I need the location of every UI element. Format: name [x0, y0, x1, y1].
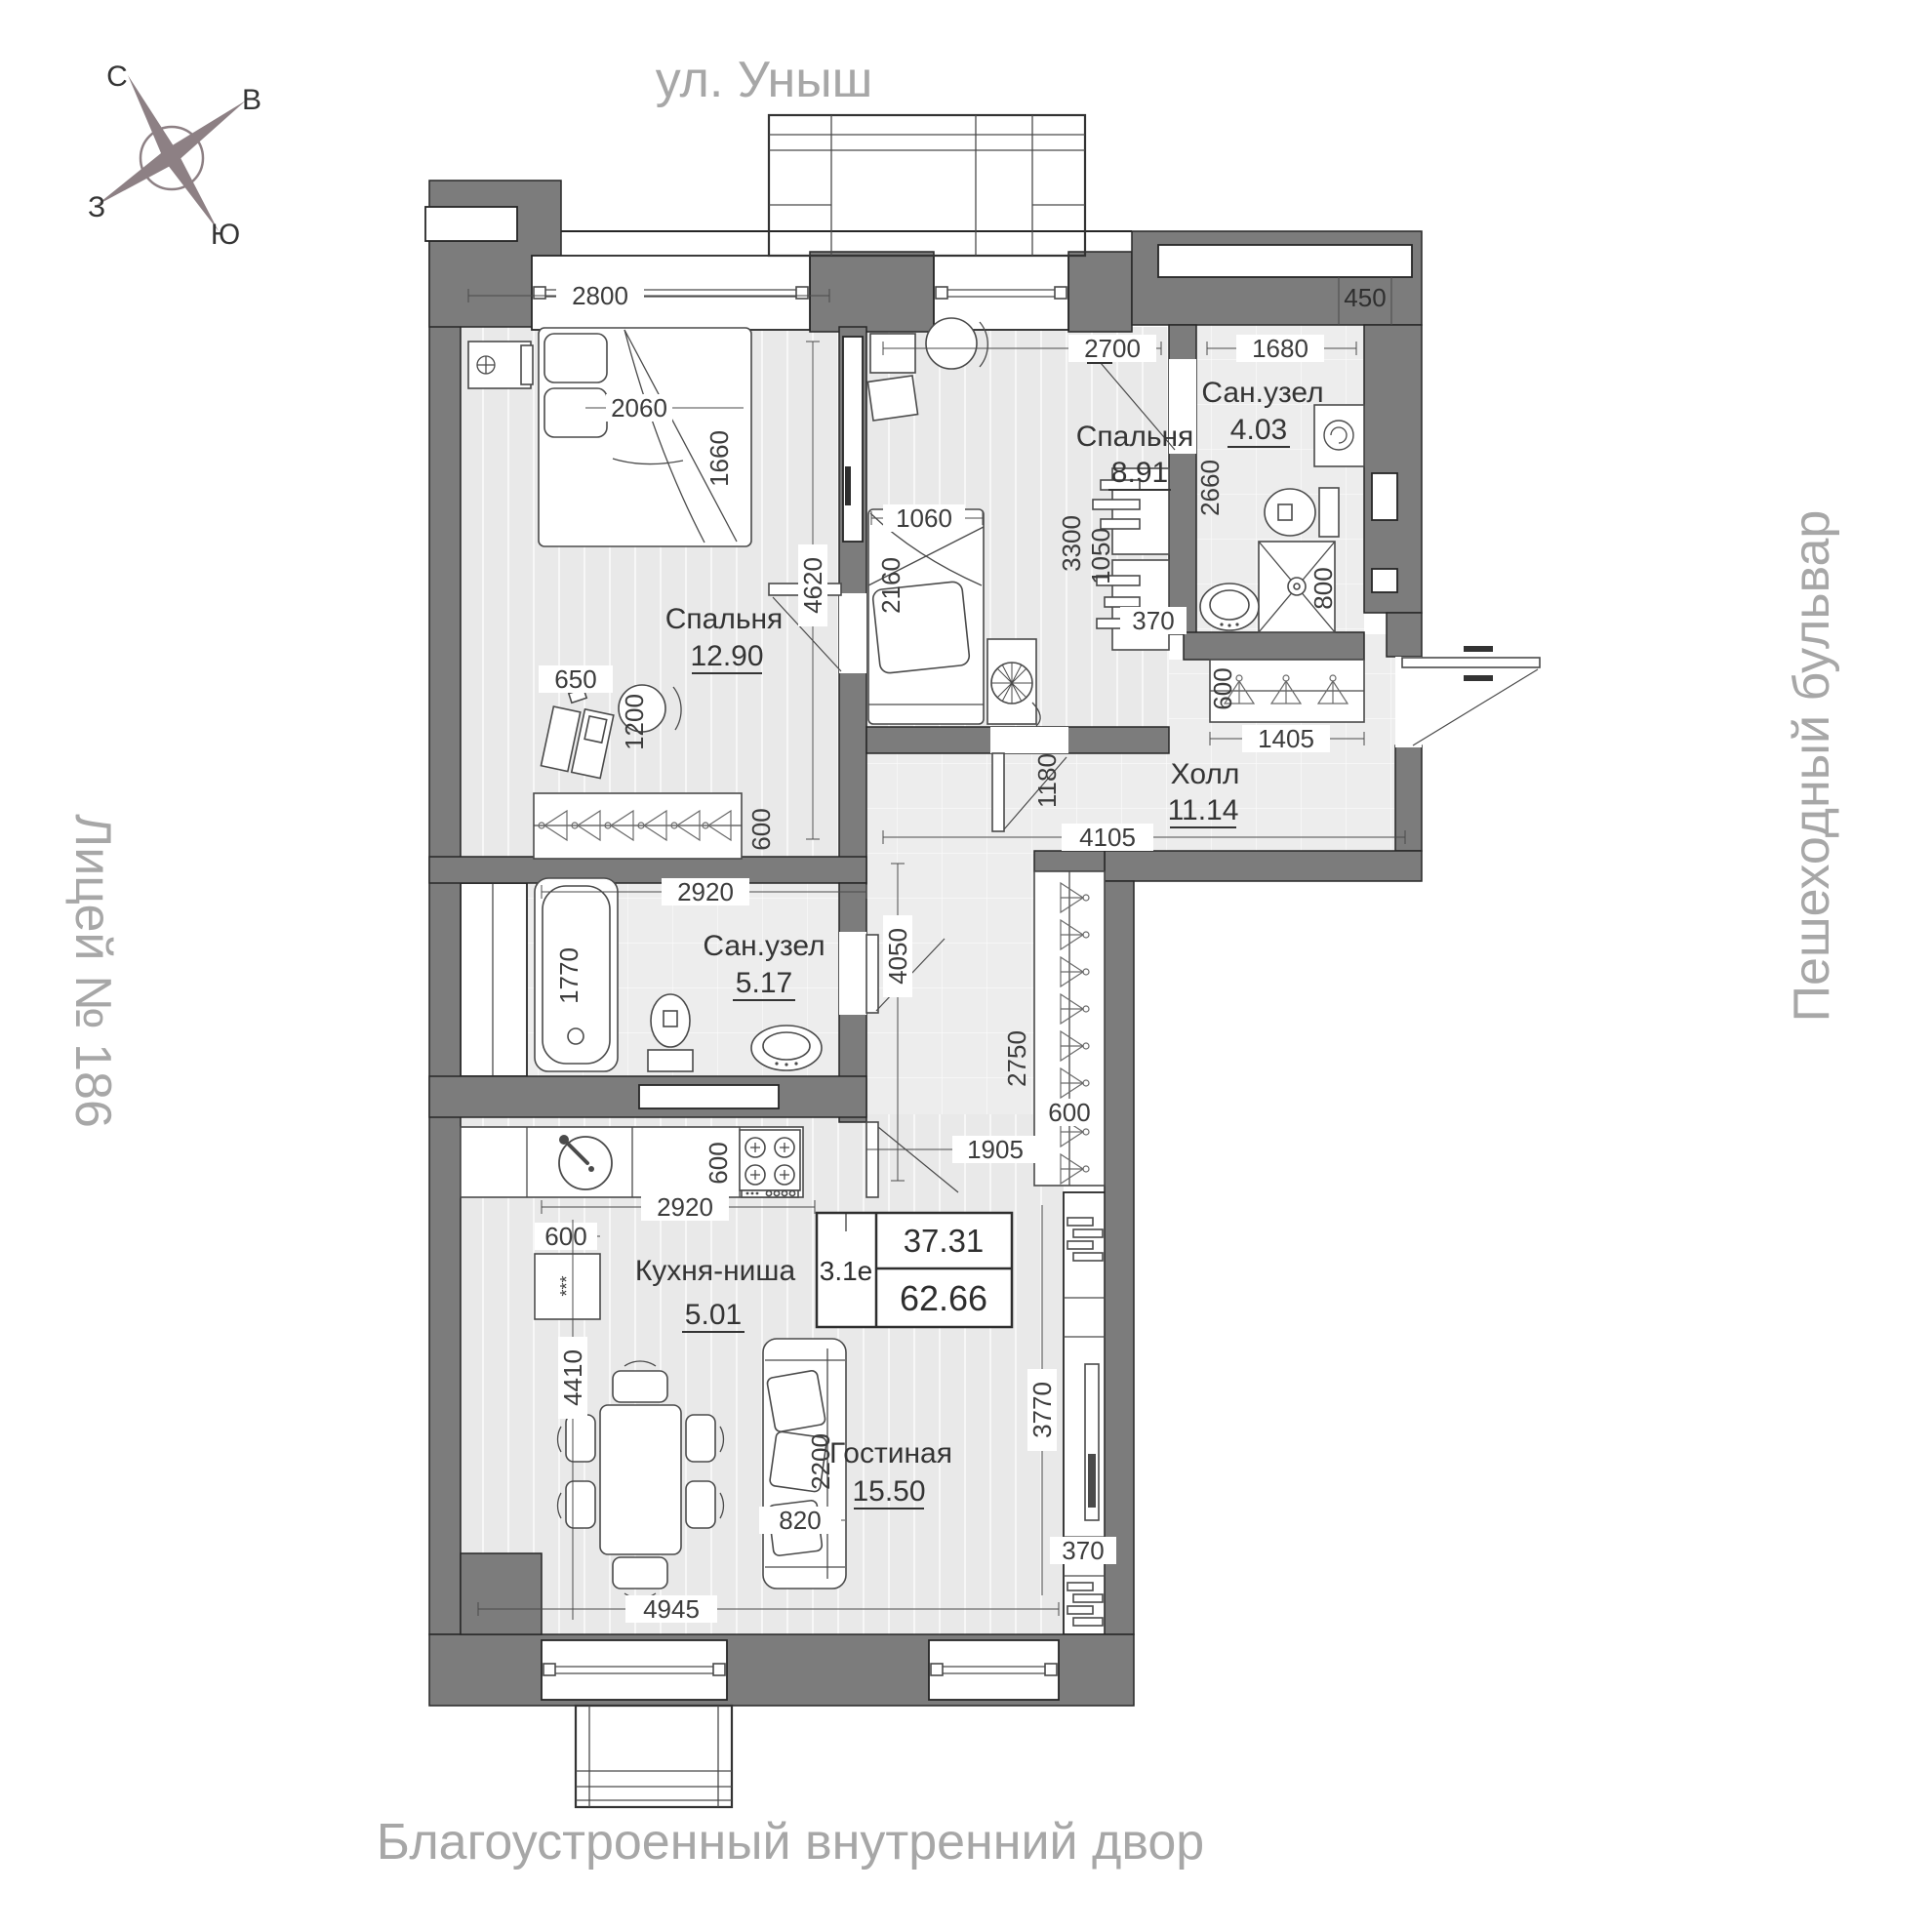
dim-corridor-closet-length: 2750 [1002, 1030, 1031, 1087]
dim-living-width: 4945 [643, 1594, 700, 1624]
wall-niche-2 [1372, 569, 1397, 592]
dim-bath1-width: 2920 [677, 877, 734, 906]
unit-info-card: 3.1е 37.31 62.66 [817, 1213, 1012, 1327]
dim-hall-length: 4105 [1079, 823, 1136, 852]
room-name-kitchen: Кухня-ниша [635, 1255, 796, 1287]
dim-hall-closet-depth: 600 [1208, 667, 1237, 709]
room-name-bathroom2: Сан.узел [1201, 377, 1323, 409]
unit-id: 3.1е [820, 1256, 873, 1286]
dim-chair1-zone: 1200 [620, 694, 649, 750]
washing-machine [1314, 405, 1364, 466]
pocket-door-panel [845, 466, 851, 505]
bedroom2-door-opening [990, 727, 1068, 753]
dim-bed2-width: 1060 [896, 503, 952, 533]
chair [686, 1415, 715, 1462]
wall-bedroom1-bottom [429, 857, 866, 883]
dim-hall-passage: 1180 [1032, 753, 1062, 808]
fridge-stars: *** [557, 1275, 577, 1296]
dim-sofa-depth: 820 [779, 1506, 821, 1535]
wall-right-mid [1387, 613, 1422, 657]
dim-tv-niche: 370 [1062, 1536, 1104, 1565]
room-name-hall: Холл [1171, 758, 1240, 790]
wall-niche-1 [1372, 473, 1397, 520]
dim-wardrobe1-depth: 600 [746, 808, 776, 850]
entrance-opening [1395, 657, 1422, 747]
wall-left [429, 222, 461, 1634]
duct-shaft [461, 883, 527, 1076]
dim-living-depth: 4410 [558, 1349, 587, 1406]
dim-bedroom2-depth: 3300 [1057, 515, 1086, 572]
wall-top-left-notch [425, 207, 517, 241]
chair [613, 1557, 667, 1589]
dim-desk1: 650 [554, 664, 596, 694]
dim-bedroom1-depth: 4620 [798, 557, 827, 614]
compass-west-label: З [88, 191, 105, 223]
chair [566, 1481, 595, 1528]
dim-counter-depth: 600 [704, 1142, 733, 1184]
dim-duct: 450 [1344, 283, 1386, 312]
dim-dresser2-depth: 370 [1132, 606, 1174, 635]
dim-corridor-length: 4050 [883, 928, 912, 985]
dim-bath2-width: 1680 [1252, 334, 1308, 363]
toilet-tank-1 [648, 1050, 693, 1071]
toilet-tank-2 [1319, 488, 1339, 537]
room-area-kitchen: 5.01 [685, 1299, 742, 1331]
dim-kitchen-width: 2920 [657, 1192, 713, 1222]
wall-window-pier [810, 252, 934, 332]
vent-duct-slot [1158, 245, 1412, 277]
corridor-closet [1034, 871, 1105, 1186]
wall-bottom-left-pier [461, 1553, 542, 1634]
dim-living-right-depth: 3770 [1027, 1382, 1057, 1438]
room-area-living: 15.50 [852, 1475, 925, 1508]
room-name-bathroom1: Сан.узел [703, 930, 825, 962]
room-area-hall: 11.14 [1168, 794, 1239, 826]
window-living-1 [542, 1640, 727, 1700]
dim-sofa-length: 2200 [806, 1433, 835, 1490]
room-name-bedroom1: Спальня [665, 603, 784, 635]
dim-hall-width: 1405 [1258, 724, 1314, 753]
compass-north-label: С [106, 60, 128, 93]
entrance-door-leaf [1402, 658, 1540, 667]
wall-closet-top [1034, 851, 1105, 871]
room-area-bathroom2: 4.03 [1230, 414, 1287, 446]
dim-bed1-length: 1660 [704, 430, 734, 487]
dim-fridge: 600 [544, 1222, 586, 1251]
room-name-living: Гостиная [829, 1437, 952, 1469]
dim-bedroom2-width: 2700 [1084, 334, 1141, 363]
compass-rose: С В З Ю [88, 60, 262, 251]
wall-hall-bottom [1105, 851, 1422, 881]
dim-bed1-width: 2060 [611, 393, 667, 423]
bedroom2-door-leaf [992, 753, 1004, 831]
room-area-bedroom1: 12.90 [690, 640, 763, 672]
pocket-door-slot [843, 337, 863, 542]
unit-total-area: 62.66 [900, 1278, 987, 1318]
stove [740, 1130, 800, 1197]
wall-top-segment [1068, 252, 1132, 332]
bathroom1-door-opening [839, 932, 866, 1015]
wall-slot-bathroom1 [639, 1085, 779, 1108]
bathroom1-door-leaf [866, 935, 878, 1013]
floor-plan-drawing: С В З Ю [0, 0, 1932, 1932]
balcony-top [769, 115, 1085, 256]
dim-bed2-length: 2160 [876, 557, 906, 614]
room-area-bathroom1: 5.17 [736, 967, 792, 999]
dim-shower: 800 [1308, 567, 1338, 609]
window-living-2 [929, 1640, 1059, 1700]
floor-plan-page: ул. Уныш Пешеходный бульвар Лицей № 186 … [0, 0, 1932, 1932]
wall-right-lower [1105, 881, 1134, 1634]
wall-bathroom2-bottom [1184, 632, 1364, 660]
chair [566, 1415, 595, 1462]
dim-bathtub: 1770 [554, 947, 584, 1004]
dim-bath2-depth: 2660 [1195, 460, 1225, 516]
chair [686, 1481, 715, 1528]
dim-bedroom1-width: 2800 [572, 281, 628, 310]
balcony-bottom [576, 1706, 732, 1807]
dim-corridor-width: 1905 [967, 1135, 1024, 1164]
kitchen-door-leaf [866, 1122, 878, 1197]
wall-entrance-block [1395, 745, 1422, 851]
chair [613, 1371, 667, 1402]
dim-dresser2-length: 1050 [1086, 528, 1115, 584]
compass-south-label: Ю [211, 219, 240, 251]
mirror [926, 318, 977, 369]
room-name-bedroom2: Спальня [1076, 421, 1194, 453]
bedroom1-door-opening [839, 593, 866, 673]
shelf-unit [870, 334, 915, 373]
room-area-bedroom2: 8.91 [1111, 457, 1168, 489]
dim-corridor-closet-depth: 600 [1048, 1098, 1090, 1127]
dining-table [600, 1405, 681, 1554]
unit-living-area: 37.31 [904, 1223, 985, 1259]
compass-east-label: В [242, 84, 262, 116]
